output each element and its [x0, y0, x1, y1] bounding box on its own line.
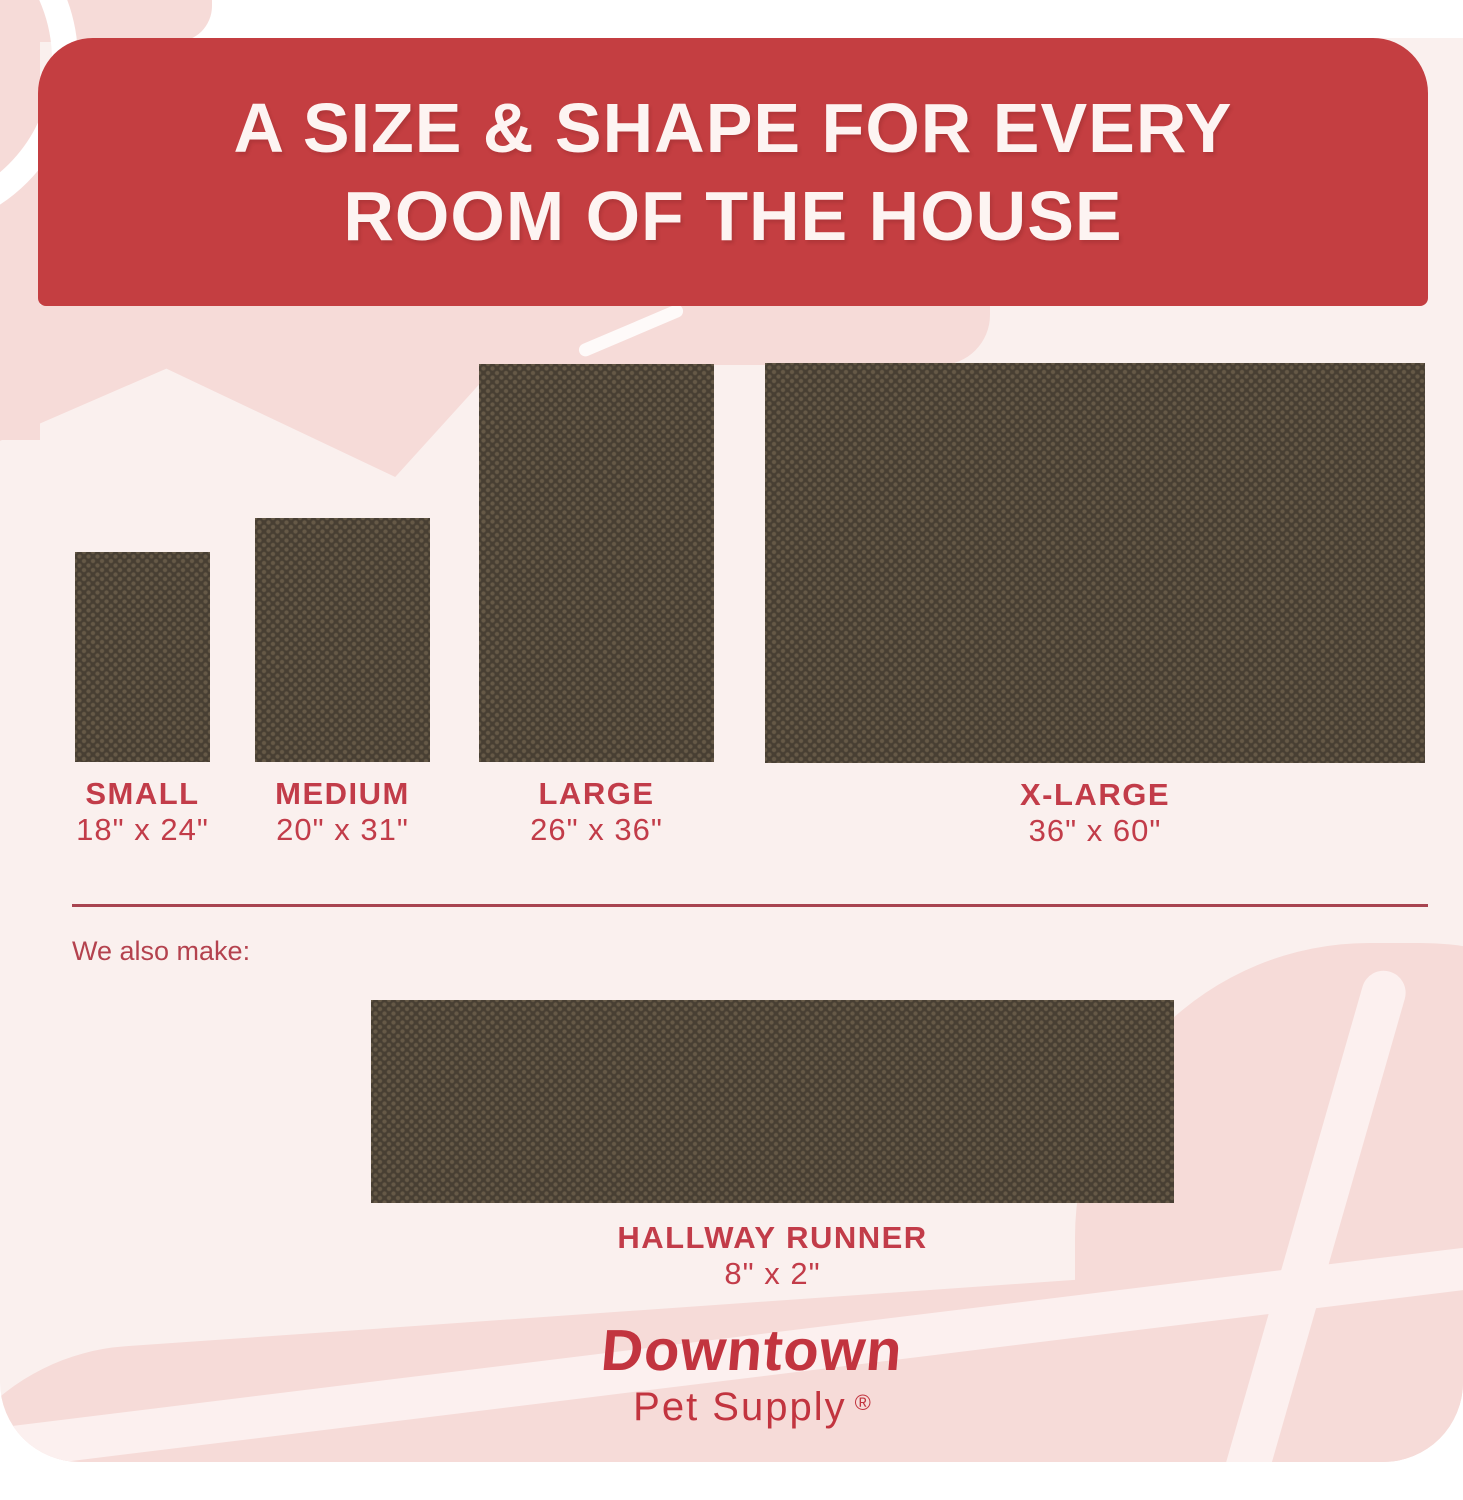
size-name-runner: HALLWAY RUNNER	[593, 1225, 953, 1251]
size-item-medium: MEDIUM 20" x 31"	[255, 518, 430, 843]
size-name-large: LARGE	[417, 781, 777, 807]
mat-swatch-medium	[255, 518, 430, 762]
size-item-hallway-runner: HALLWAY RUNNER 8" x 2"	[371, 1000, 1174, 1287]
mat-swatch-large	[479, 364, 714, 762]
mat-swatch-xlarge	[765, 363, 1425, 763]
section-divider-line	[72, 904, 1428, 907]
banner-title-line1: A SIZE & SHAPE FOR EVERY	[234, 84, 1233, 172]
size-dims-runner: 8" x 2"	[593, 1261, 953, 1287]
brand-name: Downtown	[399, 1322, 1104, 1380]
registered-trademark-icon: ®	[855, 1380, 871, 1426]
brand-logo: Downtown Pet Supply®	[402, 1322, 1102, 1436]
header-banner: A SIZE & SHAPE FOR EVERY ROOM OF THE HOU…	[38, 38, 1428, 306]
size-item-xlarge: X-LARGE 36" x 60"	[765, 363, 1425, 844]
size-dims-xlarge: 36" x 60"	[915, 818, 1275, 844]
size-name-xlarge: X-LARGE	[915, 782, 1275, 808]
mat-swatch-runner	[371, 1000, 1174, 1203]
mat-swatch-small	[75, 552, 210, 762]
infographic-page: A SIZE & SHAPE FOR EVERY ROOM OF THE HOU…	[0, 0, 1463, 1500]
brand-subname-text: Pet Supply	[633, 1385, 846, 1429]
deco-mountain-shape	[0, 305, 520, 477]
size-item-large: LARGE 26" x 36"	[479, 364, 714, 843]
banner-title-line2: ROOM OF THE HOUSE	[343, 172, 1122, 260]
also-make-label: We also make:	[72, 936, 250, 967]
brand-subname: Pet Supply®	[402, 1384, 1102, 1436]
size-dims-large: 26" x 36"	[417, 817, 777, 843]
